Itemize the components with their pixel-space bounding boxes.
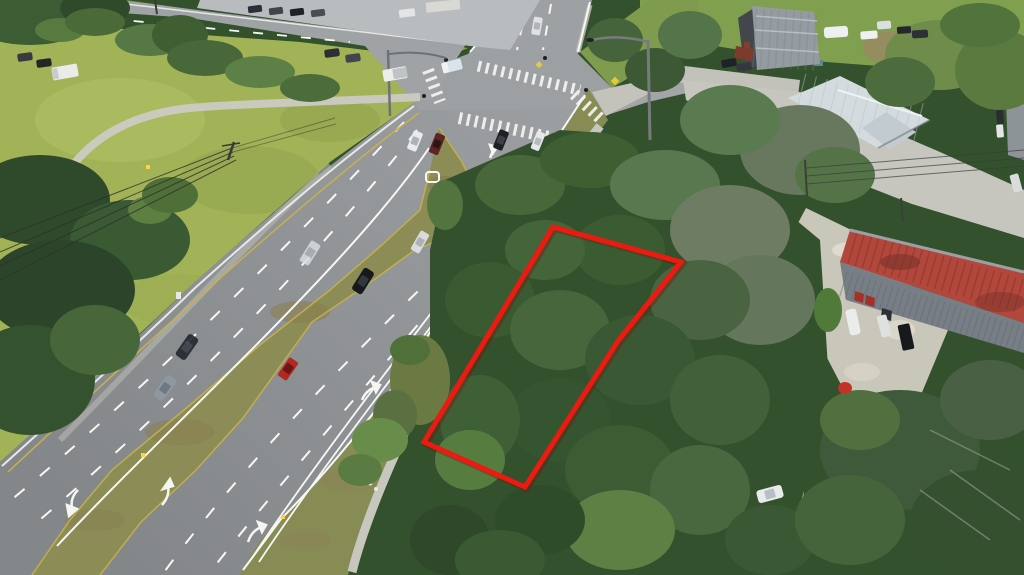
aerial-photo-canvas: [0, 0, 1024, 575]
aerial-photo: [0, 0, 1024, 575]
red-object: [838, 382, 852, 394]
camper-trailer: [824, 26, 849, 39]
streetlight-pole: [648, 40, 650, 140]
